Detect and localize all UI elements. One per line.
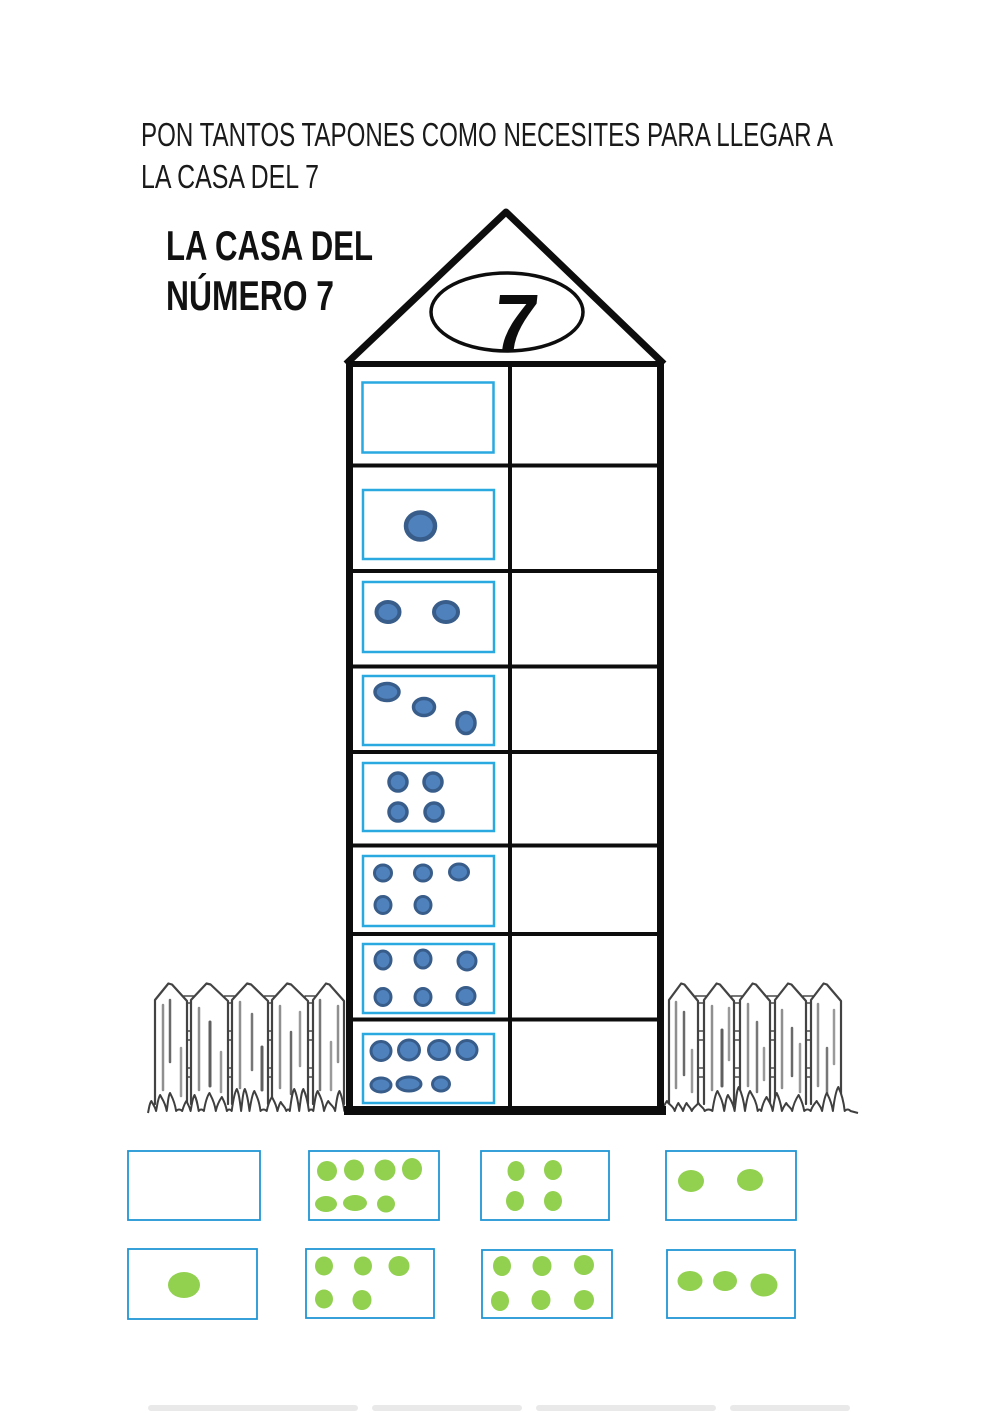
svg-text:NÚMERO 7: NÚMERO 7 (166, 271, 334, 319)
svg-text:LA CASA DEL: LA CASA DEL (166, 222, 373, 269)
svg-text:PON TANTOS TAPONES COMO NECESI: PON TANTOS TAPONES COMO NECESITES PARA L… (141, 116, 833, 153)
svg-text:7: 7 (489, 277, 543, 367)
svg-text:LA CASA DEL 7: LA CASA DEL 7 (141, 158, 319, 195)
